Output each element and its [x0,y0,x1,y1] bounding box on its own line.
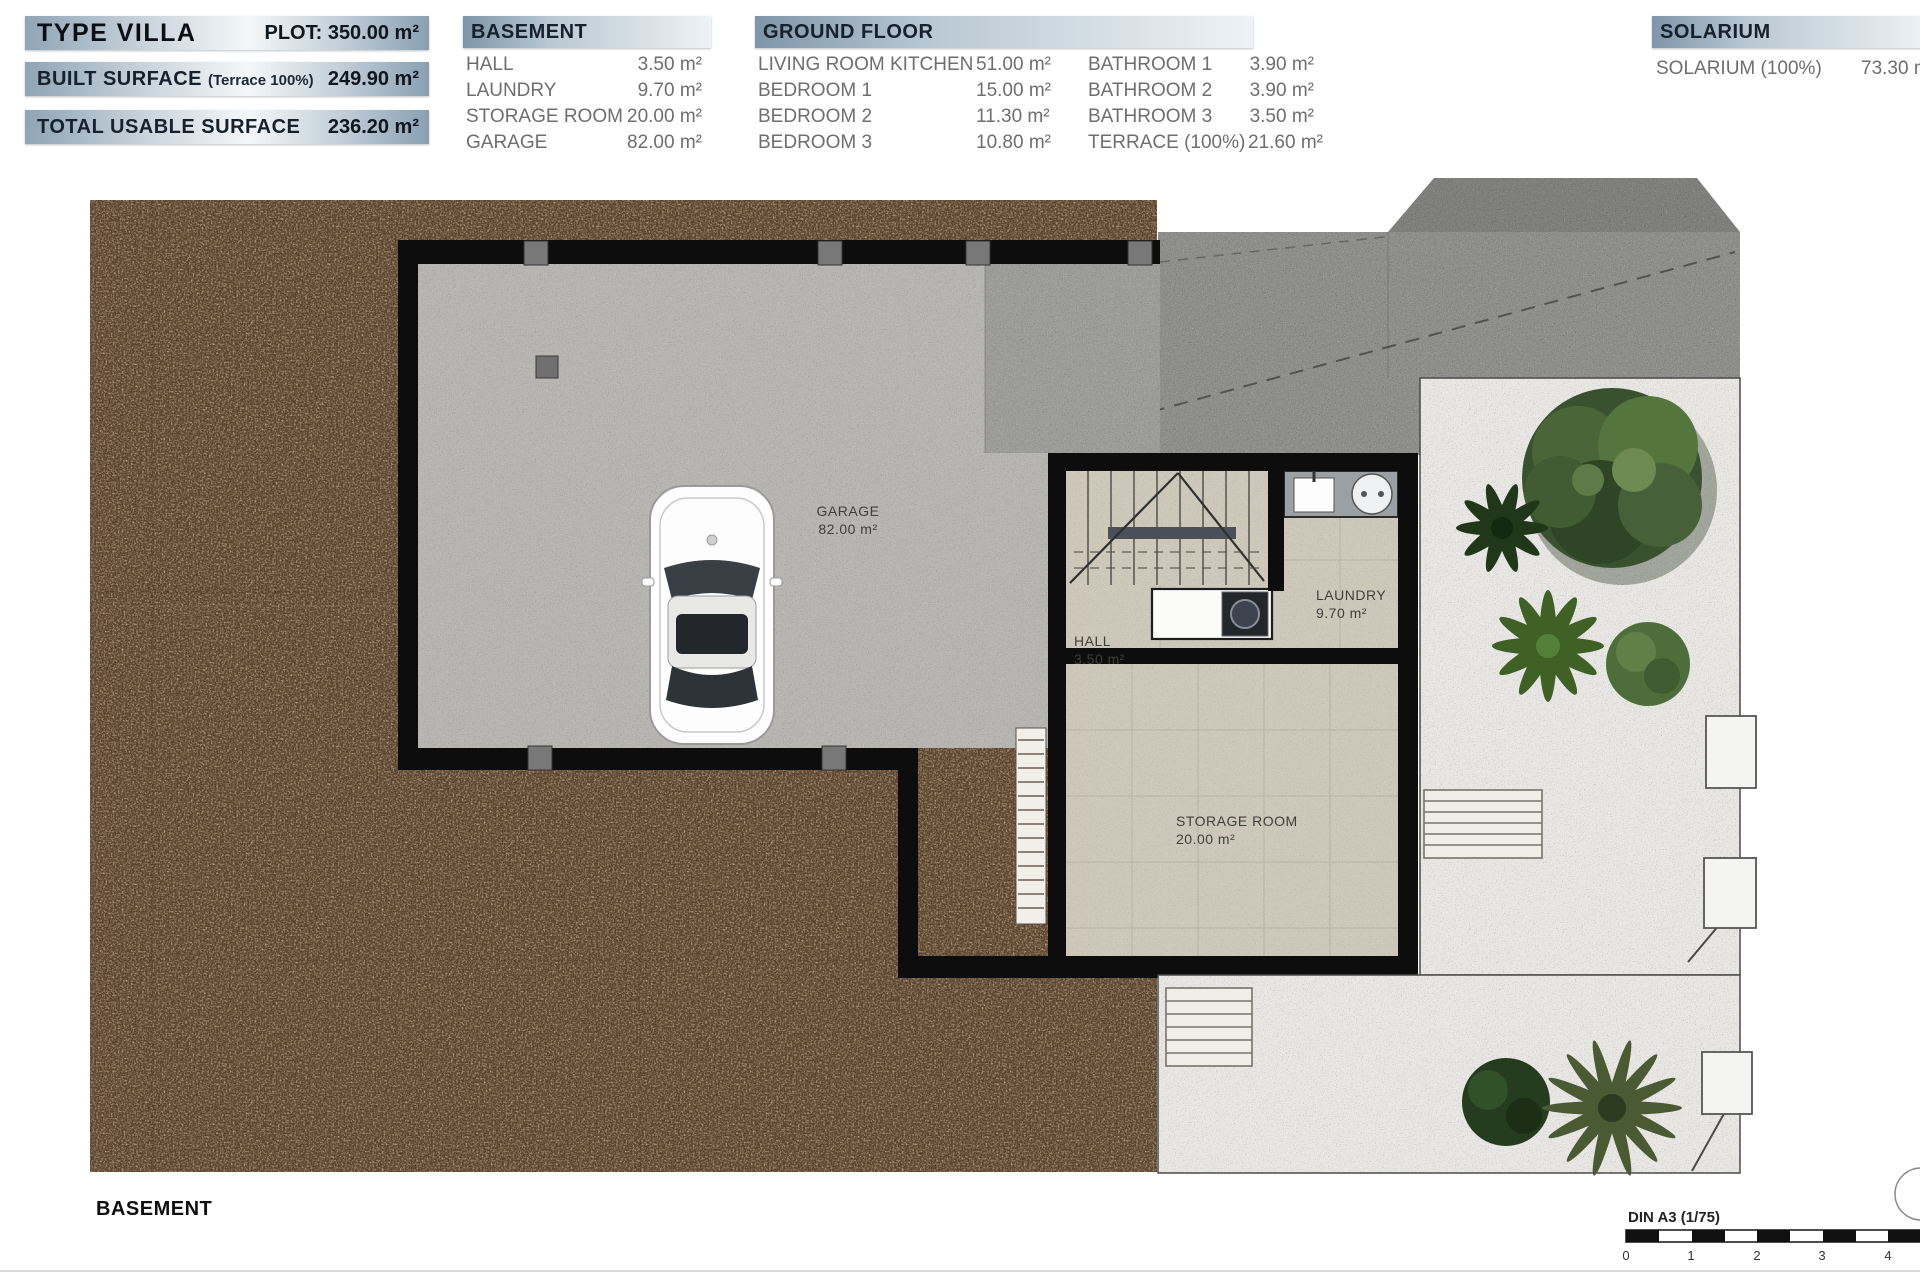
interior-rooms [1066,471,1398,956]
garage-area: 82.00 m² [818,521,877,537]
scale-label: DIN A3 (1/75) [1628,1209,1720,1226]
hall-area: 3.50 m² [1074,651,1125,667]
storage-area: 20.00 m² [1176,831,1235,847]
sink-icon [1294,478,1334,512]
round-bush [1606,622,1690,706]
scale-tick: 0 [1622,1248,1629,1263]
car-top-view [642,486,782,744]
scale-tick: 4 [1884,1248,1891,1263]
page-bottom-rule [0,1270,1920,1272]
scale-tick: 1 [1687,1248,1694,1263]
planter-boxes [1702,716,1756,1114]
scale-tick: 3 [1818,1248,1825,1263]
garden-steps [1424,790,1542,858]
compass-circle [1895,1168,1920,1220]
floor-plan: GARAGE 82.00 m² HALL 3.50 m² LAUNDRY 9.7… [0,0,1920,1280]
basin-icon [1352,474,1392,514]
laundry-label: LAUNDRY [1316,587,1386,603]
hall-label: HALL [1074,633,1111,649]
dark-bush-bottom [1462,1058,1550,1146]
storage-label: STORAGE ROOM [1176,813,1298,829]
scale-ticks: 0 1 2 3 4 [1622,1248,1891,1263]
laundry-area: 9.70 m² [1316,605,1367,621]
floor-name-footer: BASEMENT [96,1198,212,1221]
scale-tick: 2 [1753,1248,1760,1263]
shelf-unit [1016,728,1046,924]
exterior-steps [1166,988,1252,1066]
scale-bar: DIN A3 (1/75) 0 1 2 3 4 [1622,1168,1920,1263]
garage-label: GARAGE [817,503,880,519]
floorplan-page: { "header": { "summary": [ { "label": "T… [0,0,1920,1280]
